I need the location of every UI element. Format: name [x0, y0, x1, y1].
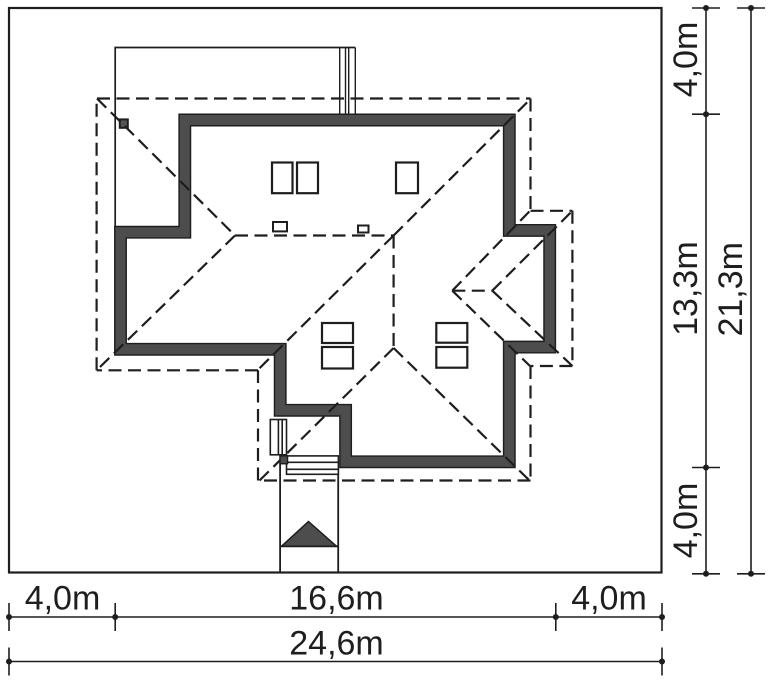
svg-text:4,0m: 4,0m — [667, 22, 705, 98]
svg-text:16,6m: 16,6m — [289, 579, 384, 617]
svg-text:4,0m: 4,0m — [667, 483, 705, 559]
svg-text:4,0m: 4,0m — [25, 579, 101, 617]
svg-text:24,6m: 24,6m — [289, 625, 384, 663]
svg-text:4,0m: 4,0m — [571, 579, 647, 617]
svg-text:21,3m: 21,3m — [712, 242, 750, 337]
svg-text:13,3m: 13,3m — [667, 241, 705, 336]
